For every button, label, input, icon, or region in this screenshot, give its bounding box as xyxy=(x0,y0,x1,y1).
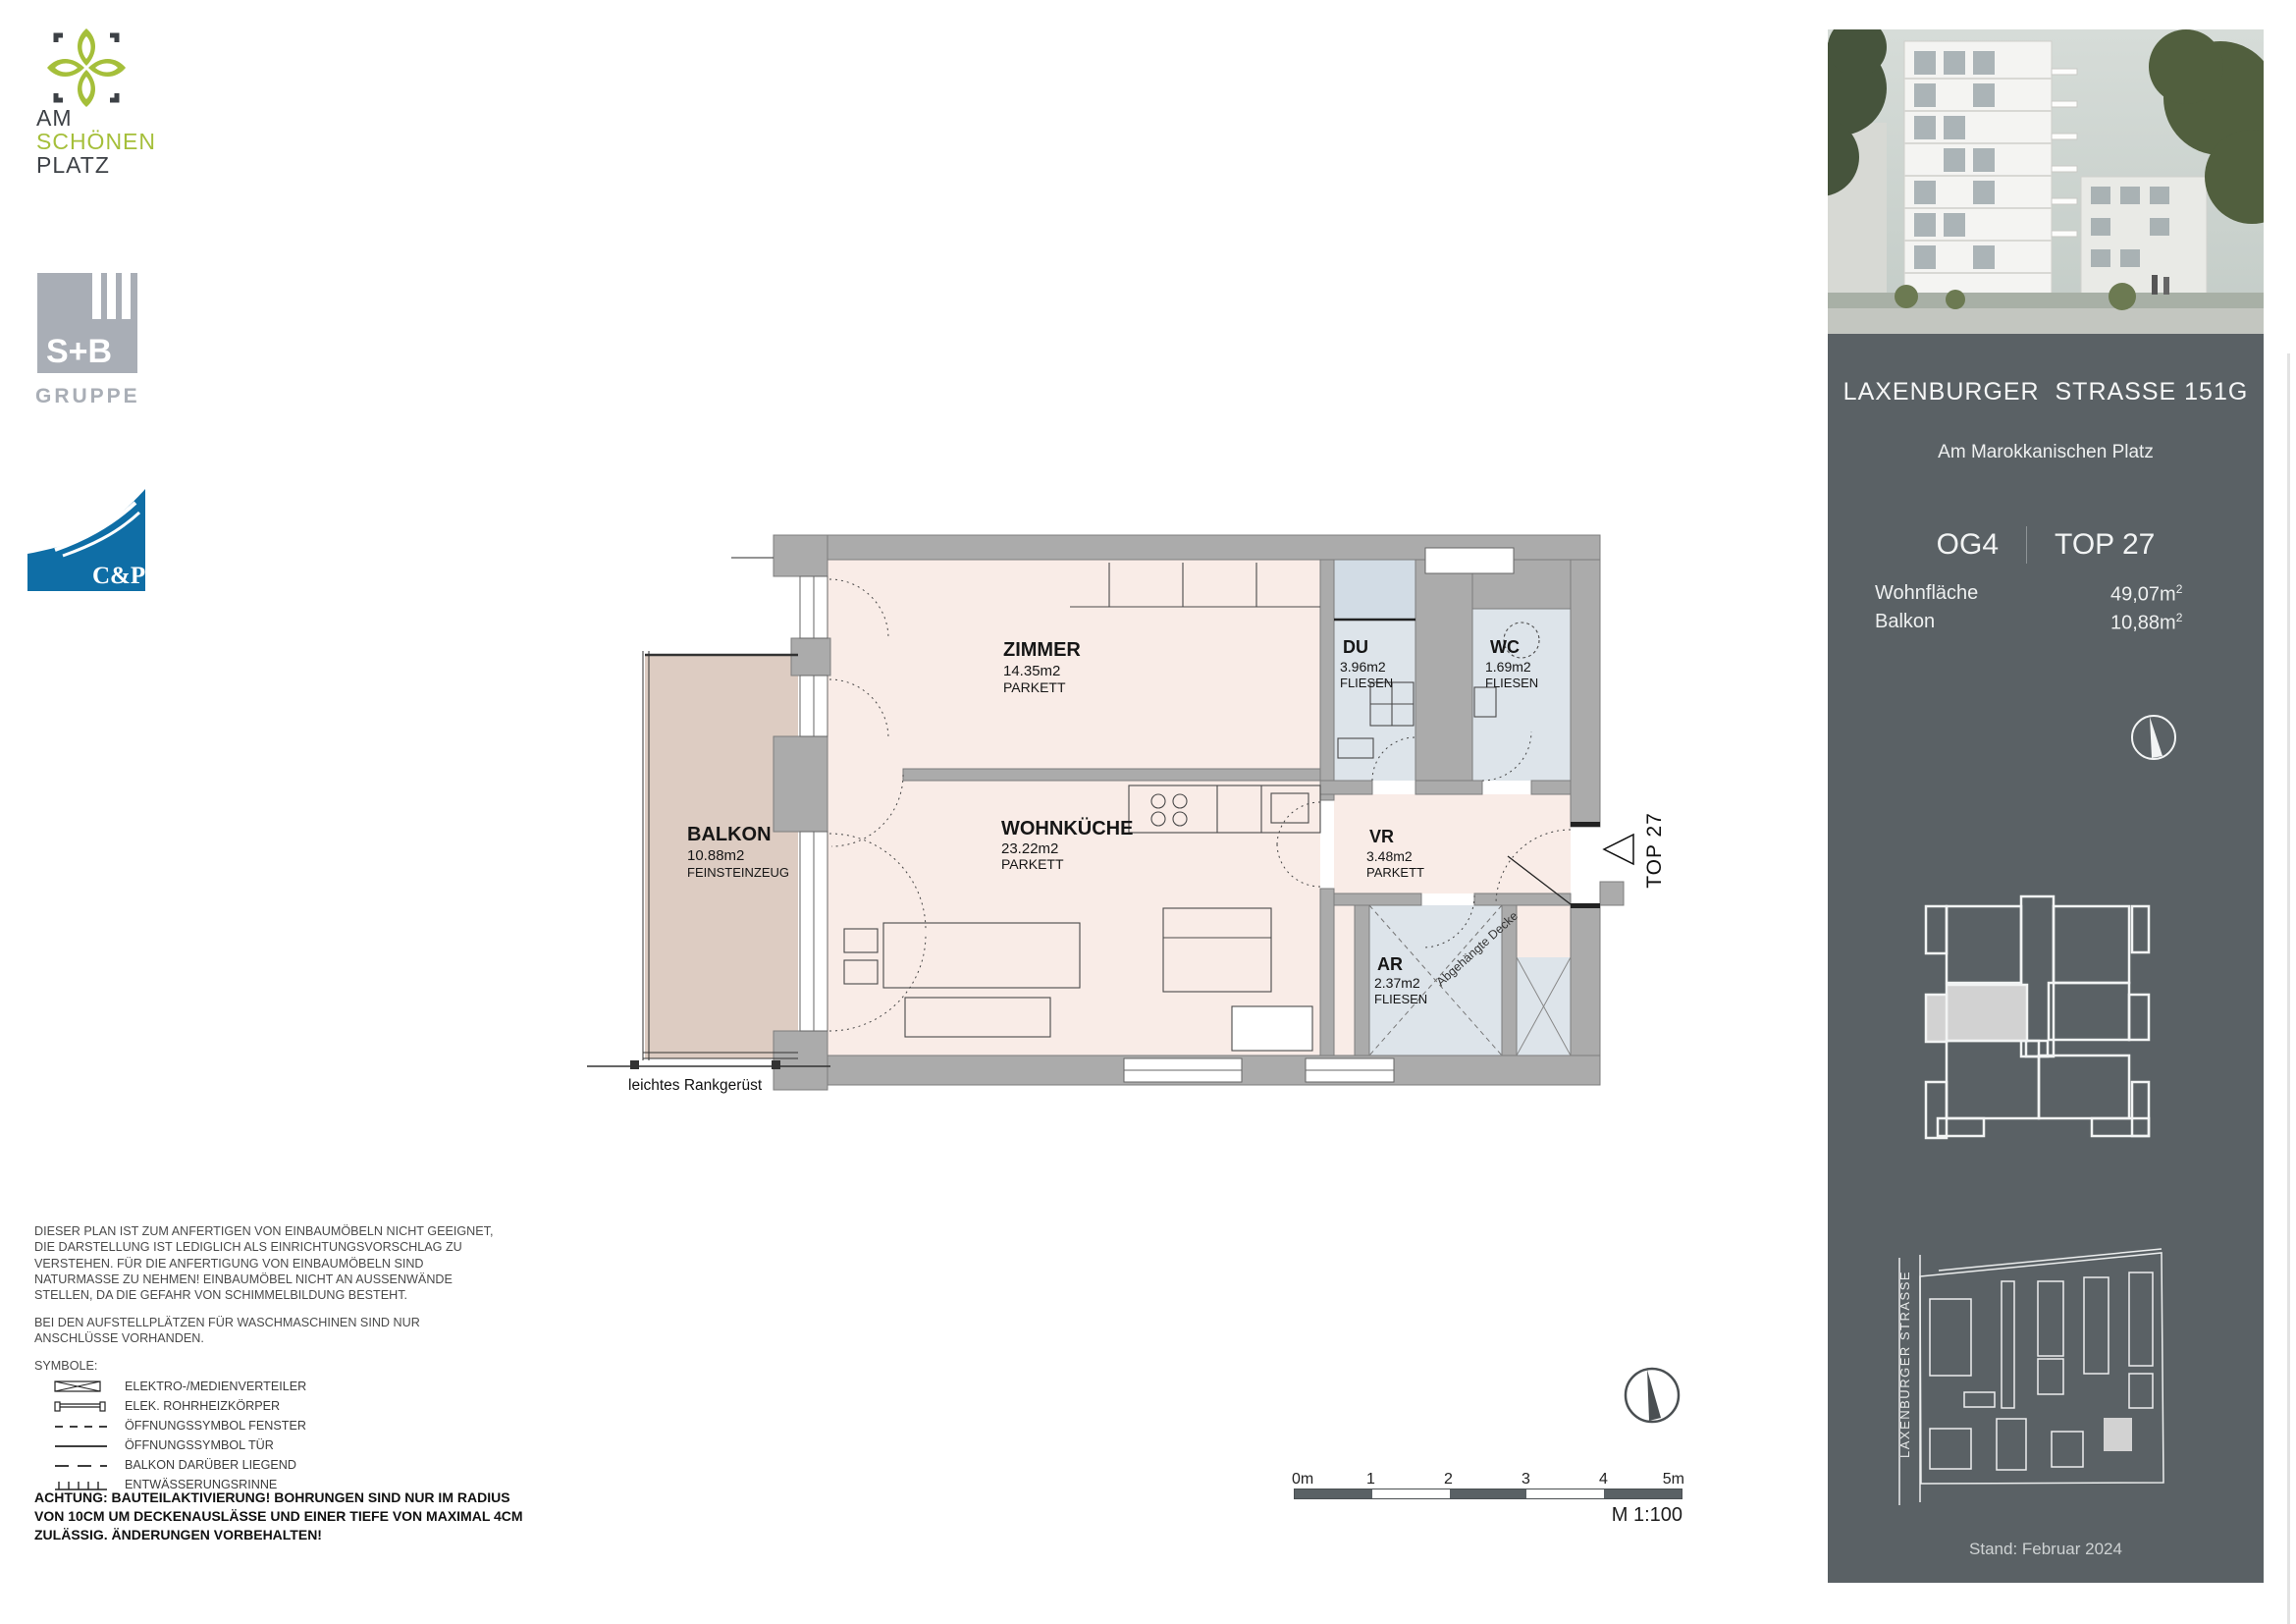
scale-bar: 0m 1 2 3 4 5m M 1:100 xyxy=(1294,1471,1682,1499)
legend-item: BALKON DARÜBER LIEGEND xyxy=(54,1456,306,1473)
metric-row: Wohnfläche 49,07m2 xyxy=(1828,582,2264,611)
page-edge-line xyxy=(2287,353,2290,1624)
room-floor: PARKETT xyxy=(1366,865,1424,880)
symbols-heading: SYMBOLE: xyxy=(34,1358,504,1374)
legend-label: ELEK. ROHRHEIZKÖRPER xyxy=(125,1399,280,1413)
project-subtitle: Am Marokkanischen Platz xyxy=(1828,442,2264,463)
legal-notes: DIESER PLAN IST ZUM ANFERTIGEN VON EINBA… xyxy=(34,1223,504,1384)
room-name: AR xyxy=(1377,954,1403,974)
metrics: Wohnfläche 49,07m2 Balkon 10,88m2 xyxy=(1828,582,2264,639)
asp-line2: SCHÖNEN xyxy=(36,130,156,153)
legend-label: ÖFFNUNGSSYMBOL FENSTER xyxy=(125,1419,306,1433)
site-plan: LAXENBURGER STRASSE xyxy=(1880,1230,2268,1559)
am-schoenen-platz-logo-text: AM SCHÖNEN PLATZ xyxy=(36,106,156,177)
scale-bar-segments xyxy=(1294,1489,1682,1499)
asp-line3: PLATZ xyxy=(36,153,156,177)
legend-label: BALKON DARÜBER LIEGEND xyxy=(125,1458,296,1472)
floor-plan: leichtes Rankgerüst ZIMMER 14.35m2 PARKE… xyxy=(540,525,1698,1193)
scale-tick: 4 xyxy=(1599,1471,1608,1489)
room-floor: FLIESEN xyxy=(1340,676,1393,690)
stand-date: Stand: Februar 2024 xyxy=(1828,1540,2264,1559)
building-rendering xyxy=(1828,29,2264,334)
sb-initials: S+B xyxy=(46,333,112,370)
floor-label: OG4 xyxy=(1937,528,1999,562)
divider xyxy=(2026,526,2027,564)
site-highlighted-building xyxy=(2104,1418,2132,1451)
warning-note: ACHTUNG: BAUTEILAKTIVIERUNG! BOHRUNGEN S… xyxy=(34,1489,545,1544)
top-marker-label: TOP 27 xyxy=(1643,812,1666,889)
tuer-oeffnung-icon xyxy=(54,1437,111,1453)
room-area: 14.35m2 xyxy=(1003,663,1060,679)
sb-gruppe-label: GRUPPE xyxy=(35,385,140,408)
legend-label: ÖFFNUNGSSYMBOL TÜR xyxy=(125,1438,274,1452)
room-area: 23.22m2 xyxy=(1001,840,1058,857)
room-area: 1.69m2 xyxy=(1485,659,1531,675)
scale-tick: 2 xyxy=(1444,1471,1453,1489)
legal-p2: BEI DEN AUFSTELLPLÄTZEN FÜR WASCHMASCHIN… xyxy=(34,1315,504,1347)
room-floor: PARKETT xyxy=(1003,679,1066,695)
project-title: LAXENBURGER STRASSE 151G xyxy=(1828,378,2264,406)
scale-tick: 1 xyxy=(1366,1471,1375,1489)
room-name: DU xyxy=(1343,637,1368,657)
room-floor: FLIESEN xyxy=(1374,992,1427,1006)
legend-label: ELEKTRO-/MEDIENVERTEILER xyxy=(125,1380,306,1393)
warning-line2: VON 10CM UM DECKENAUSLÄSSE UND EINER TIE… xyxy=(34,1507,545,1526)
legal-p1: DIESER PLAN IST ZUM ANFERTIGEN VON EINBA… xyxy=(34,1223,504,1304)
scale-tick: 0m xyxy=(1292,1471,1313,1489)
metric-value-sup: 2 xyxy=(2176,582,2183,596)
rankgeruest-label: leichtes Rankgerüst xyxy=(628,1077,763,1094)
room-floor: PARKETT xyxy=(1001,856,1064,872)
warning-line1: ACHTUNG: BAUTEILAKTIVIERUNG! BOHRUNGEN S… xyxy=(34,1489,545,1507)
info-sidebar: LAXENBURGER STRASSE 151G Am Marokkanisch… xyxy=(1828,334,2264,1583)
key-plan xyxy=(1904,884,2228,1168)
room-area: 3.96m2 xyxy=(1340,659,1386,675)
sidebar-compass-icon xyxy=(2125,709,2182,766)
metric-value-sup: 2 xyxy=(2176,611,2183,624)
legend-item: ELEK. ROHRHEIZKÖRPER xyxy=(54,1397,306,1414)
metric-value-text: 49,07m xyxy=(2110,584,2176,606)
am-schoenen-platz-ornament-icon xyxy=(32,26,140,110)
asp-line1: AM xyxy=(36,106,156,130)
elektro-verteiler-icon xyxy=(54,1379,111,1394)
room-name: ZIMMER xyxy=(1003,639,1081,661)
room-area: 10.88m2 xyxy=(687,847,744,864)
warning-line3: ZULÄSSIG. ÄNDERUNGEN VORBEHALTEN! xyxy=(34,1526,545,1544)
floor-unit-row: OG4 TOP 27 xyxy=(1828,526,2264,564)
metric-row: Balkon 10,88m2 xyxy=(1828,611,2264,639)
top-marker: TOP 27 xyxy=(1604,812,1666,889)
room-floor: FLIESEN xyxy=(1485,676,1538,690)
cp-logo: C&P xyxy=(27,489,161,591)
metric-value: 49,07m2 xyxy=(2110,582,2182,607)
rohrheizkoerper-icon xyxy=(54,1398,111,1414)
unit-label: TOP 27 xyxy=(2055,528,2155,562)
metric-value-text: 10,88m xyxy=(2110,613,2176,634)
legend-item: ELEKTRO-/MEDIENVERTEILER xyxy=(54,1378,306,1394)
metric-label: Balkon xyxy=(1875,611,1935,633)
room-name: WC xyxy=(1490,637,1520,657)
room-name: VR xyxy=(1369,827,1394,846)
room-area: 3.48m2 xyxy=(1366,848,1413,864)
balkon-darueber-icon xyxy=(54,1457,111,1473)
room-floor: FEINSTEINZEUG xyxy=(687,865,789,880)
metric-label: Wohnfläche xyxy=(1875,582,1978,605)
north-compass-icon xyxy=(1620,1363,1684,1432)
symbols-legend: ELEKTRO-/MEDIENVERTEILER ELEK. ROHRHEIZK… xyxy=(54,1378,306,1495)
legend-item: ÖFFNUNGSSYMBOL TÜR xyxy=(54,1436,306,1453)
legend-item: ÖFFNUNGSSYMBOL FENSTER xyxy=(54,1417,306,1434)
scale-tick: 5m xyxy=(1663,1471,1684,1489)
metric-value: 10,88m2 xyxy=(2110,611,2182,635)
scale-note: M 1:100 xyxy=(1612,1504,1682,1527)
fenster-oeffnung-icon xyxy=(54,1418,111,1434)
street-label: LAXENBURGER STRASSE xyxy=(1897,1271,1912,1458)
room-name: WOHNKÜCHE xyxy=(1001,817,1133,839)
cp-initials: C&P xyxy=(92,563,145,589)
room-area: 2.37m2 xyxy=(1374,975,1420,991)
page: AM SCHÖNEN PLATZ S+B GRUPPE C&P xyxy=(0,0,2296,1624)
sb-gruppe-logo: S+B xyxy=(37,273,137,373)
scale-labels: 0m 1 2 3 4 5m xyxy=(1294,1471,1682,1489)
scale-tick: 3 xyxy=(1522,1471,1530,1489)
room-name: BALKON xyxy=(687,824,772,845)
